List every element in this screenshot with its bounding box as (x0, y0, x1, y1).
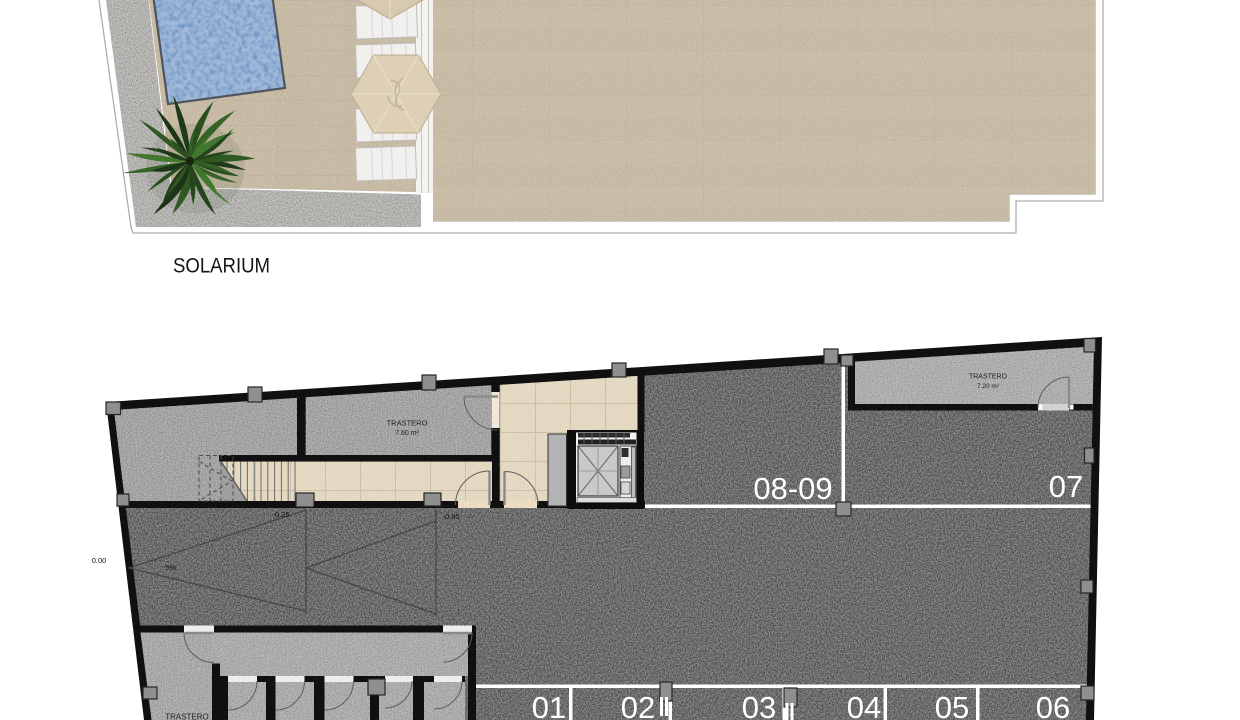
svg-text:02: 02 (621, 690, 655, 720)
svg-text:07: 07 (1049, 469, 1083, 504)
svg-text:06: 06 (1036, 690, 1070, 720)
svg-text:01: 01 (532, 690, 566, 720)
svg-text:TRASTERO: TRASTERO (165, 713, 209, 720)
svg-text:SOLARIUM: SOLARIUM (173, 255, 270, 278)
svg-text:-0.85: -0.85 (442, 512, 459, 521)
svg-text:04: 04 (847, 690, 881, 720)
svg-text:TRASTERO: TRASTERO (969, 374, 1008, 381)
svg-text:05: 05 (935, 690, 969, 720)
svg-text:0.00: 0.00 (92, 556, 107, 565)
svg-text:7.60 m²: 7.60 m² (395, 430, 419, 437)
svg-text:7.20 m²: 7.20 m² (977, 383, 1000, 390)
svg-text:03: 03 (742, 690, 776, 720)
svg-text:-0.25: -0.25 (272, 510, 289, 519)
svg-text:5%: 5% (166, 563, 177, 572)
svg-text:08-09: 08-09 (753, 471, 832, 506)
svg-text:TRASTERO: TRASTERO (387, 419, 428, 428)
